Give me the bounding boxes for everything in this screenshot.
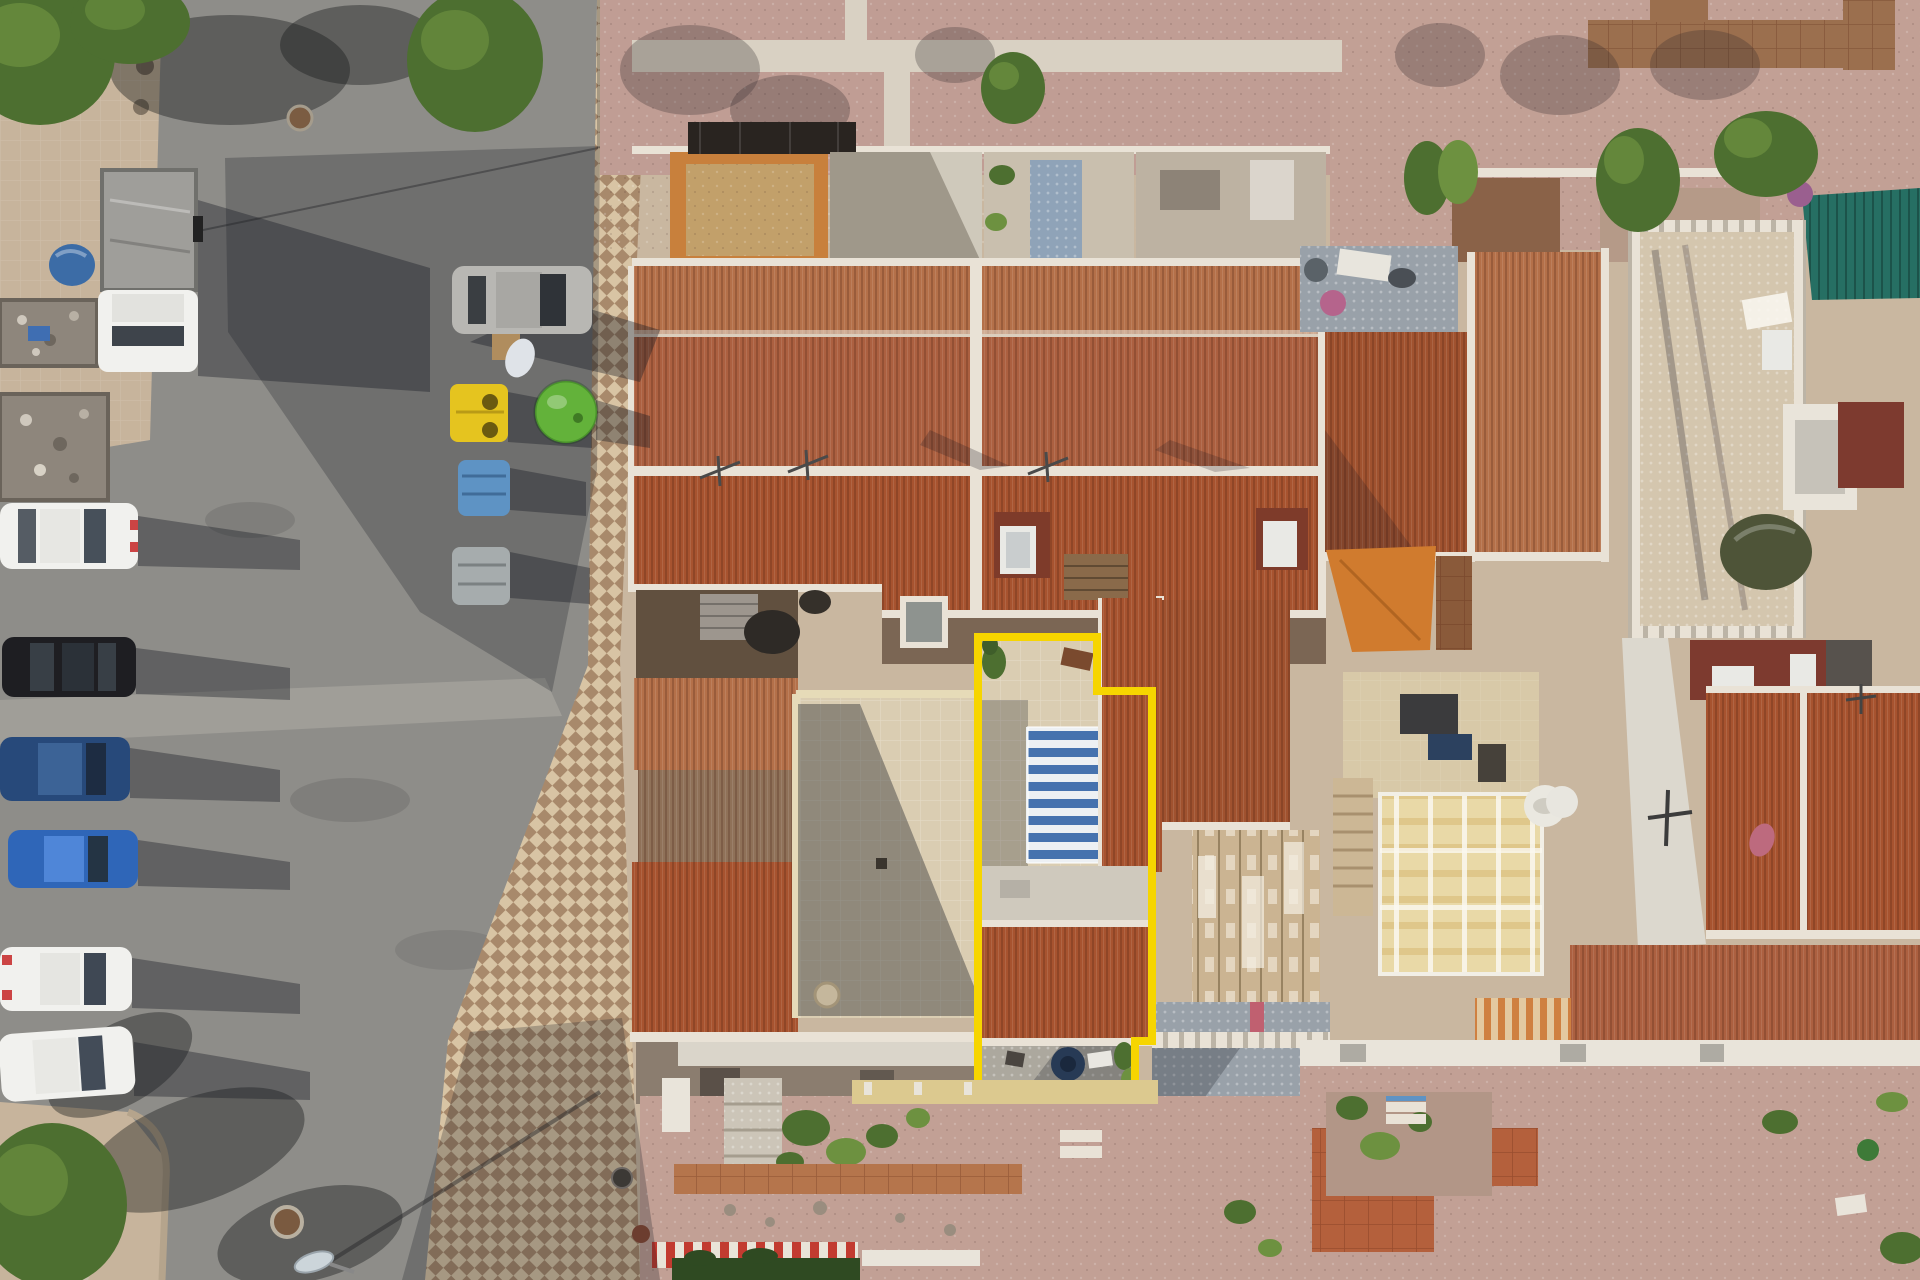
silver-car: [452, 266, 592, 334]
main-roof-block: [628, 266, 1326, 618]
dark-blue-car: [0, 737, 130, 801]
black-pergola-frame: [688, 122, 856, 154]
west-neighbour-house: [630, 678, 978, 1104]
weathered-pergola: [1192, 830, 1320, 1002]
watering-can: [1857, 1139, 1879, 1161]
white-car: [0, 947, 132, 1011]
yellow-clothing-bank: [450, 384, 508, 442]
garden-wall: [852, 1080, 1158, 1104]
manhole-cover: [288, 106, 312, 130]
blue-striped-awning: [1026, 727, 1102, 863]
blue-container: [458, 460, 510, 516]
satellite-dish: [1546, 786, 1578, 818]
pink-towel: [1250, 1002, 1264, 1032]
blue-debris: [28, 326, 50, 341]
grey-container: [452, 547, 510, 605]
manhole-cover: [272, 1207, 302, 1237]
white-flatbed-truck: [98, 170, 203, 372]
tree: [1438, 140, 1478, 204]
purple-table: [1320, 290, 1346, 316]
skylight: [994, 512, 1050, 578]
cream-folding-canopy: [1380, 794, 1542, 974]
blue-car: [8, 830, 138, 888]
white-hatchback: [0, 503, 138, 569]
white-estate-car: [0, 1025, 136, 1102]
highlighted-property: [978, 598, 1162, 1100]
aerial-photo: [0, 0, 1920, 1280]
ac-unit: [1762, 330, 1792, 370]
back-gardens-center: [612, 1078, 1300, 1280]
green-glass-igloo: [535, 381, 597, 443]
tree: [1714, 111, 1818, 197]
black-car: [2, 637, 136, 697]
tree: [1596, 128, 1680, 232]
stone-circle: [815, 983, 839, 1007]
staircase: [1333, 778, 1373, 916]
tree: [981, 52, 1045, 124]
skylight: [1256, 508, 1308, 570]
